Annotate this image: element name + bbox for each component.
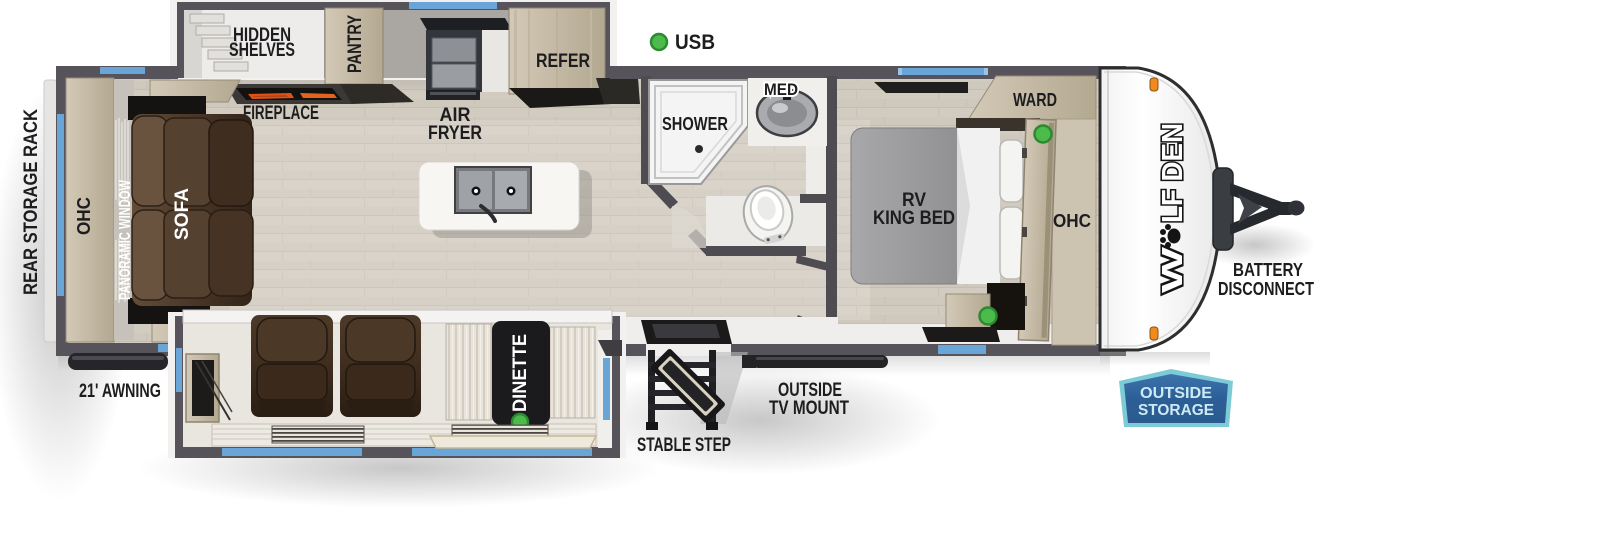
svg-text:STORAGE: STORAGE [1138,402,1214,419]
svg-text:DINETTE: DINETTE [510,334,531,412]
svg-text:21' AWNING: 21' AWNING [79,381,161,402]
svg-text:PANTRY: PANTRY [345,15,366,73]
svg-text:TV MOUNT: TV MOUNT [769,398,849,419]
svg-text:DISCONNECT: DISCONNECT [1218,279,1314,299]
svg-text:OHC: OHC [74,197,94,235]
svg-text:FIREPLACE: FIREPLACE [243,103,319,124]
svg-text:OUTSIDE: OUTSIDE [1140,385,1212,402]
svg-text:MED: MED [764,80,798,99]
svg-text:PANORAMIC WINDOW: PANORAMIC WINDOW [117,180,134,300]
svg-text:FRYER: FRYER [428,123,482,144]
svg-text:LF DEN: LF DEN [1157,123,1189,223]
svg-text:WARD: WARD [1013,90,1057,110]
svg-text:SOFA: SOFA [172,188,193,240]
svg-text:REAR STORAGE RACK: REAR STORAGE RACK [21,109,42,295]
svg-text:BATTERY: BATTERY [1233,260,1303,280]
svg-text:OHC: OHC [1053,211,1091,231]
svg-text:REFER: REFER [536,51,590,72]
svg-text:SHOWER: SHOWER [662,114,728,134]
svg-text:USB: USB [675,31,715,54]
svg-text:KING BED: KING BED [873,208,955,229]
svg-text:STABLE STEP: STABLE STEP [637,435,731,456]
svg-text:SHELVES: SHELVES [229,40,295,61]
svg-text:W: W [1157,246,1189,293]
